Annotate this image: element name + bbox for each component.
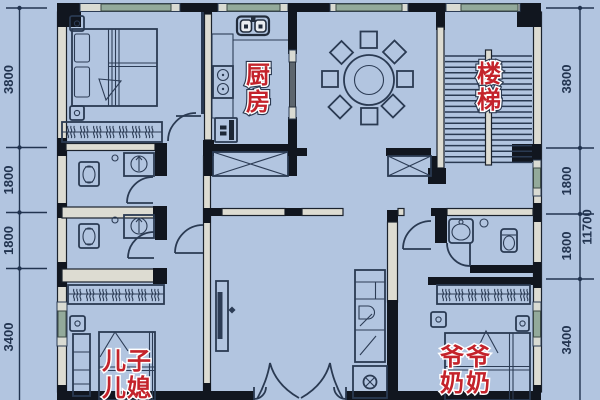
svg-text:3400: 3400 <box>559 326 574 355</box>
svg-text:3800: 3800 <box>1 65 16 94</box>
svg-text:1800: 1800 <box>1 226 16 255</box>
svg-text:爷: 爷 <box>466 343 491 371</box>
svg-text:房: 房 <box>246 88 270 116</box>
svg-text:1800: 1800 <box>559 232 574 261</box>
svg-text:奶: 奶 <box>440 370 464 397</box>
svg-text:厨: 厨 <box>246 62 270 89</box>
svg-text:儿: 儿 <box>102 375 126 400</box>
svg-text:楼: 楼 <box>477 61 501 88</box>
svg-text:1800: 1800 <box>1 166 16 195</box>
svg-text:梯: 梯 <box>477 86 501 114</box>
svg-text:媳: 媳 <box>127 374 151 400</box>
svg-text:奶: 奶 <box>466 370 490 397</box>
svg-text:子: 子 <box>127 348 151 375</box>
svg-text:爷: 爷 <box>440 343 465 371</box>
svg-text:儿: 儿 <box>102 348 126 375</box>
svg-text:3400: 3400 <box>1 323 16 352</box>
svg-text:3800: 3800 <box>559 65 574 94</box>
svg-text:11700: 11700 <box>580 209 595 244</box>
svg-text:1800: 1800 <box>559 167 574 196</box>
